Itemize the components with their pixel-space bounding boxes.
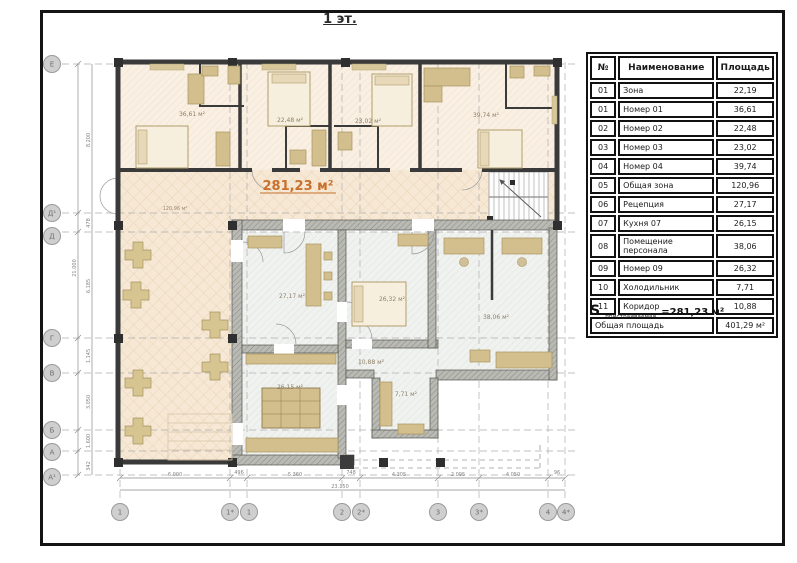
area-label-staff: 38,06 м² [483,314,510,321]
cell-name: Номер 04 [618,158,714,175]
area-label-room01: 36,61 м² [179,111,206,118]
cell-area: 10,88 [716,298,774,315]
axis-label: 2* [357,509,365,517]
dim-left-2: 478 [86,218,92,228]
axis-bubble: 1 [241,504,258,521]
axis-bubble: 1* [222,504,239,521]
axis-label: 1* [226,509,234,517]
cell-num: 01 [590,101,616,118]
cell-name: Общая зона [618,177,714,194]
added-area-label: 281,23 м² [262,179,333,194]
cell-name: Рецепция [618,196,714,213]
table-row: 07Кухня 0726,15 [590,215,774,232]
axis-bubble: Б [44,422,61,439]
cell-area: 23,02 [716,139,774,156]
axis-bubble: 3 [430,504,447,521]
cell-area: 27,17 [716,196,774,213]
axis-bubble: Д¹ [44,205,61,222]
dim-left-6: 1.600 [86,434,92,448]
area-label-reception: 27,17 м² [279,293,306,300]
area-label-room09: 26,32 м² [379,296,406,303]
col-header-area: Площадь [716,56,774,80]
dim-left-total: 21.000 [72,259,78,277]
axis-label: Б [50,427,55,435]
table-row: 04Номер 0439,74 [590,158,774,175]
axis-label: Е [50,61,54,69]
axis-label: 4* [562,509,570,517]
axis-bubbles-left: Е Д¹ Д Г В Б А А¹ [44,56,61,486]
chair [518,258,527,267]
attached-area-annotation: S пристраиваемая =281,23 м² [590,300,724,320]
axis-label: Д [49,233,55,241]
area-label-room04: 39,74 м² [473,112,500,119]
kitchen-island [262,388,320,428]
dim-left-5: 3.050 [86,395,92,409]
cell-area: 26,15 [716,215,774,232]
axis-label: Д¹ [48,210,56,218]
table-row: 01Номер 0136,61 [590,101,774,118]
dim-bottom-1: 6.000 [168,472,182,478]
added-area-callout: 281,23 м² [260,179,336,194]
area-label-kitchen: 26,15 м² [277,384,304,391]
axis-bubble: А [44,444,61,461]
table-row: 01Зона22,19 [590,82,774,99]
col-header-num: № [590,56,616,80]
axis-label: 1 [247,509,251,517]
dim-bottom-4: 748 [346,470,356,476]
axis-label: 3 [436,509,440,517]
total-area-cell: 401,29 м² [716,317,774,334]
axis-label: Г [50,335,54,343]
cell-name: Номер 03 [618,139,714,156]
dim-left-3: 6.185 [86,279,92,293]
axis-label: А¹ [48,474,56,482]
axis-bubble: В [44,365,61,382]
cell-name: Зона [618,82,714,99]
cell-area: 26,32 [716,260,774,277]
axis-bubble: Е [44,56,61,73]
axis-label: 3* [475,509,483,517]
cell-num: 08 [590,234,616,258]
axis-bubble: 2 [334,504,351,521]
axis-bubble: 1 [112,504,129,521]
legend-table: № Наименование Площадь 01Зона22,19 01Ном… [586,52,778,338]
cell-num: 03 [590,139,616,156]
cell-num: 06 [590,196,616,213]
dim-bottom-8: 96 [554,470,560,476]
cell-area: 36,61 [716,101,774,118]
dim-bottom-6: 2.095 [451,472,465,478]
dim-bottom-3: 5.360 [288,472,302,478]
axis-bubble: 2* [353,504,370,521]
dim-bottom-5: 4.305 [392,472,406,478]
axis-label: В [50,370,55,378]
table-row: 09Номер 0926,32 [590,260,774,277]
axis-bubble: А¹ [44,469,61,486]
cell-name: Номер 02 [618,120,714,137]
table-row: 05Общая зона120,96 [590,177,774,194]
cell-num: 02 [590,120,616,137]
dim-left-7: 342 [86,461,92,471]
legend-header-row: № Наименование Площадь [590,56,774,80]
cell-area: 120,96 [716,177,774,194]
table-row: 03Номер 0323,02 [590,139,774,156]
axis-bubble: 4* [558,504,575,521]
s-subscript: пристраиваемая [605,314,656,320]
table-row: 06Рецепция27,17 [590,196,774,213]
chair [460,258,469,267]
table-row: 10Холодильник7,71 [590,279,774,296]
area-label-common-zone: 120,96 м² [163,206,188,212]
cell-name: Помещение персонала [618,234,714,258]
dim-left-1: 8.200 [86,133,92,147]
area-label-room03: 23,02 м² [355,118,382,125]
axis-bubble: Г [44,330,61,347]
dim-bottom-2: 496 [234,470,244,476]
cell-name: Номер 09 [618,260,714,277]
axis-label: А [50,449,55,457]
area-label-fridge: 7,71 м² [395,391,418,398]
cell-num: 10 [590,279,616,296]
cell-area: 39,74 [716,158,774,175]
s-value: =281,23 м² [661,307,724,318]
staircase [487,172,548,222]
table-row: 08Помещение персонала38,06 [590,234,774,258]
cell-area: 7,71 [716,279,774,296]
cell-area: 38,06 [716,234,774,258]
dim-bottom-7: 4.050 [506,472,520,478]
cell-num: 07 [590,215,616,232]
cell-num: 05 [590,177,616,194]
col-header-name: Наименование [618,56,714,80]
axis-label: 2 [340,509,344,517]
drawing-sheet: 1 эт. [0,0,797,563]
cell-num: 04 [590,158,616,175]
dim-left-4: 1.145 [86,349,92,363]
cell-area: 22,48 [716,120,774,137]
axis-bubble: 3* [471,504,488,521]
axis-bubble: 4 [540,504,557,521]
cell-num: 01 [590,82,616,99]
dim-bottom-total: 23.150 [331,484,349,490]
cell-name: Кухня 07 [618,215,714,232]
axis-bubbles-bottom: 1 1* 1 2 2* 3 3* 4 4* [112,504,575,521]
area-label-corridor: 10,88 м² [358,359,385,366]
axis-label: 1 [118,509,122,517]
table-row: 02Номер 0222,48 [590,120,774,137]
axis-bubble: Д [44,228,61,245]
axis-label: 4 [546,509,551,517]
cell-name: Холодильник [618,279,714,296]
porch-outline [354,445,540,470]
cell-area: 22,19 [716,82,774,99]
cell-num: 09 [590,260,616,277]
wall-corner [340,455,354,469]
cell-name: Номер 01 [618,101,714,118]
area-label-room02: 22,48 м² [277,117,304,124]
s-symbol: S [590,303,600,319]
